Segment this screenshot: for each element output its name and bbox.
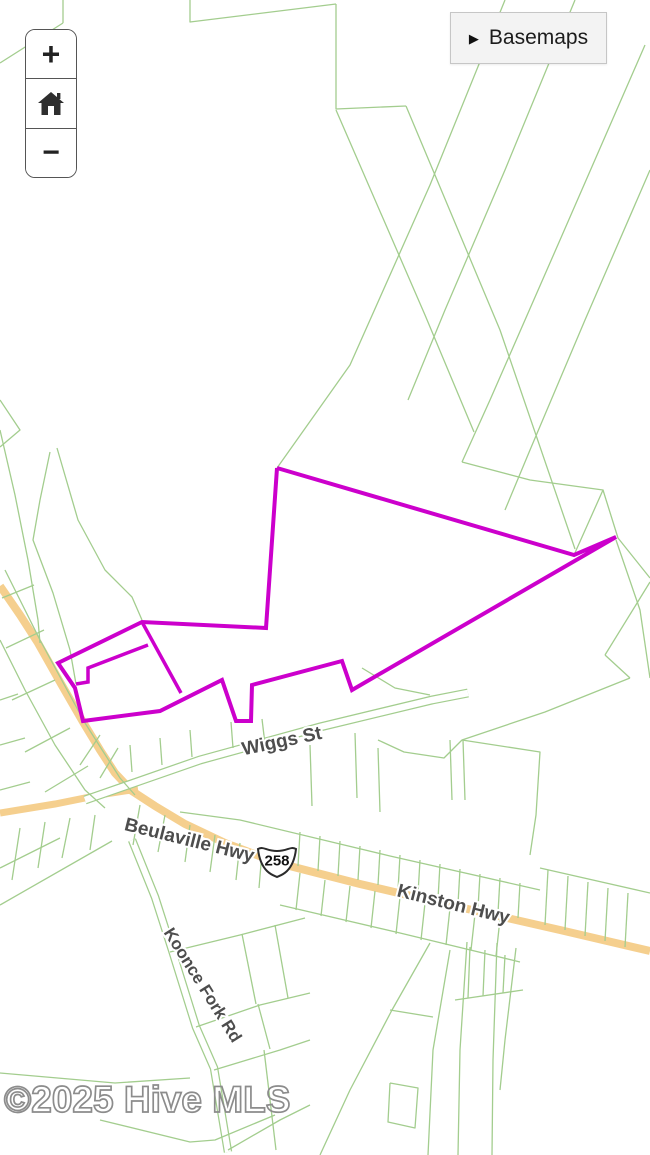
zoom-in-button[interactable]: + [26,30,76,78]
highlighted-parcel [58,468,616,721]
watermark-text: ©2025 Hive MLS [4,1079,290,1120]
home-icon [37,90,65,116]
route-shield-258: 258 [258,848,296,877]
parcel-map[interactable]: Wiggs StBeulaville HwyKinston HwyKoonce … [0,0,650,1155]
street-label-kinston-hwy: Kinston Hwy [395,881,512,929]
plus-icon: + [42,38,61,70]
map-zoom-control: + − [25,29,77,178]
basemaps-button[interactable]: ▶ Basemaps [450,12,607,64]
zoom-out-button[interactable]: − [26,128,76,177]
street-label-wiggs-st: Wiggs St [240,723,324,761]
basemaps-button-label: Basemaps [489,26,588,50]
map-viewport[interactable]: Wiggs StBeulaville HwyKinston HwyKoonce … [0,0,650,1155]
parcel-lines-layer [0,0,650,1155]
route-shield-number: 258 [264,853,289,870]
expand-arrow-icon: ▶ [469,32,479,45]
minus-icon: − [42,138,60,168]
street-label-koonce-fork-rd: Koonce Fork Rd [160,924,246,1045]
home-button[interactable] [26,78,76,127]
roads-layer [0,586,650,951]
